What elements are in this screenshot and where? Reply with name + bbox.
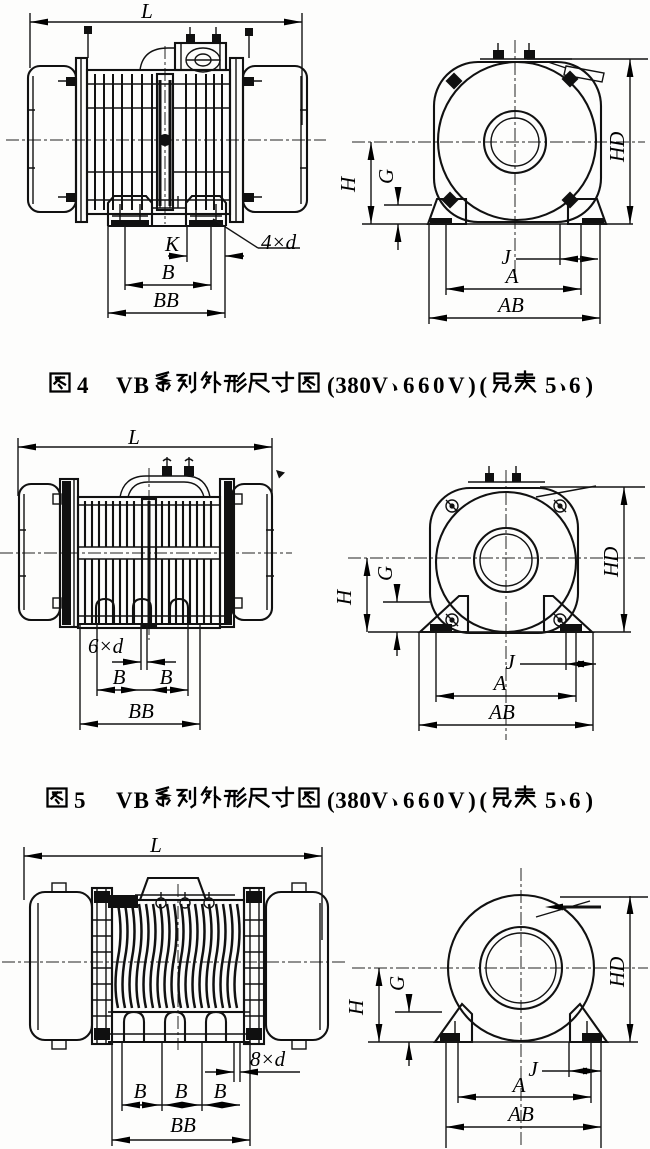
- svg-text:AB: AB: [496, 293, 524, 317]
- svg-text:5: 5: [545, 788, 557, 813]
- svg-text:K: K: [164, 232, 180, 256]
- svg-text:5: 5: [74, 788, 86, 813]
- svg-text:5: 5: [545, 373, 557, 398]
- svg-text:B: B: [134, 1079, 147, 1103]
- svg-text:AB: AB: [506, 1102, 534, 1126]
- svg-text:L: L: [140, 0, 153, 23]
- svg-text:A: A: [504, 264, 519, 288]
- svg-text:VB: VB: [116, 788, 149, 813]
- svg-text:BB: BB: [128, 699, 154, 723]
- svg-text:(380V: (380V: [327, 373, 388, 398]
- svg-text:H: H: [332, 588, 356, 606]
- svg-text:BB: BB: [170, 1113, 196, 1137]
- svg-text:G: G: [385, 976, 409, 991]
- svg-text:4: 4: [77, 373, 89, 398]
- svg-text:6×d: 6×d: [88, 634, 124, 658]
- svg-text:H: H: [344, 998, 368, 1016]
- svg-text:G: G: [374, 169, 398, 184]
- svg-text:4×d: 4×d: [261, 230, 297, 254]
- svg-text:A: A: [511, 1073, 526, 1097]
- svg-text:B: B: [113, 665, 126, 689]
- svg-text:HD: HD: [599, 547, 623, 578]
- svg-text:VB: VB: [116, 373, 149, 398]
- svg-text:BB: BB: [153, 288, 179, 312]
- svg-text:(380V: (380V: [327, 788, 388, 813]
- svg-text:B: B: [162, 260, 175, 284]
- svg-text:HD: HD: [605, 957, 629, 988]
- svg-text:8×d: 8×d: [250, 1047, 286, 1071]
- svg-text:B: B: [175, 1079, 188, 1103]
- svg-text:B: B: [214, 1079, 227, 1103]
- svg-text:AB: AB: [487, 700, 515, 724]
- svg-text:H: H: [336, 175, 360, 193]
- svg-text:A: A: [492, 671, 507, 695]
- svg-text:G: G: [373, 566, 397, 581]
- svg-text:L: L: [127, 425, 140, 449]
- svg-text:HD: HD: [605, 132, 629, 163]
- svg-text:B: B: [160, 665, 173, 689]
- svg-text:L: L: [149, 833, 162, 857]
